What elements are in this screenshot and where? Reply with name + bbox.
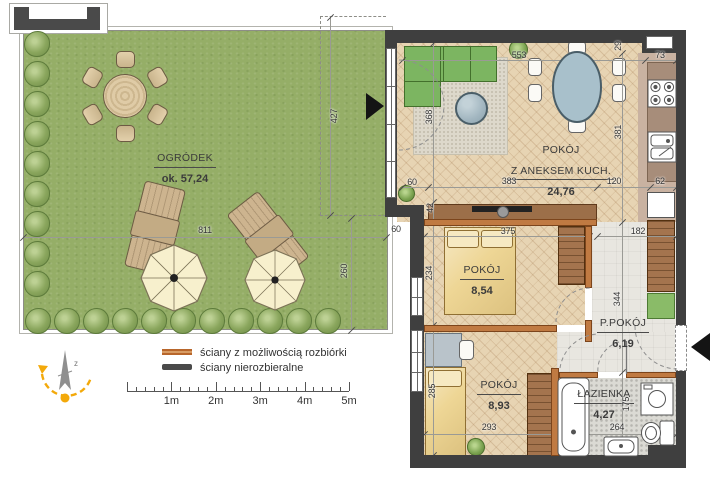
scale-tick	[216, 382, 217, 391]
legend-label-removable: ściany z możliwością rozbiórki	[200, 347, 347, 359]
scale-label: 1m	[164, 395, 179, 407]
dimension-garden-width: 811	[198, 225, 212, 235]
bush	[24, 241, 50, 267]
living-room-label: POKÓJ Z ANEKSEM KUCH. 24,76	[496, 139, 626, 201]
wall-removable-bedroom1-hall	[585, 226, 592, 288]
scale-tick	[349, 382, 350, 391]
bush	[112, 308, 138, 334]
bush	[199, 308, 225, 334]
dimension-living-bottom: 383	[502, 176, 516, 186]
room-area: 8,93	[488, 400, 509, 412]
dining-chair	[568, 41, 586, 55]
scale-tick	[296, 387, 297, 391]
scale-tick	[198, 387, 199, 391]
legend: ściany z możliwością rozbiórki ściany ni…	[162, 347, 392, 375]
scale-label: 2m	[208, 395, 223, 407]
scale-tick	[189, 387, 190, 391]
shaft-block	[648, 445, 676, 457]
pillow	[447, 230, 479, 248]
dimension-kitchen-top: 73	[655, 50, 665, 60]
dimension-sideboard-depth: 42	[425, 203, 435, 213]
dimension-bed2-length: 285	[427, 384, 437, 398]
dimension-hall-depth: 344	[612, 292, 622, 306]
legend-swatch-removable	[162, 349, 192, 355]
dimension-line	[424, 236, 589, 237]
scale-tick	[163, 387, 164, 391]
dimension-line	[351, 218, 352, 330]
room-area: 24,76	[547, 186, 575, 198]
wall-removable-living-bedroom1	[424, 219, 597, 226]
dimension-line	[23, 237, 386, 238]
compass-needle-icon	[59, 350, 71, 390]
dimension-garden-depth-upper: 427	[329, 109, 339, 123]
scale-tick	[154, 387, 155, 391]
svg-text:z: z	[74, 359, 78, 368]
bush	[24, 121, 50, 147]
scale-tick	[127, 382, 128, 391]
bush	[286, 308, 312, 334]
bush	[24, 151, 50, 177]
scale-tick	[287, 387, 288, 391]
bush	[54, 308, 80, 334]
window-living-garden	[386, 48, 396, 198]
bush	[24, 211, 50, 237]
desk-chair	[459, 340, 474, 360]
bush	[24, 91, 50, 117]
garden-area-value: ok. 57,24	[162, 173, 208, 185]
scale-tick	[313, 387, 314, 391]
scale-tick	[322, 387, 323, 391]
terrace-structure-notch	[29, 7, 87, 19]
wall-right-upper	[676, 43, 686, 325]
wall-removable-bedroom1-bedroom2	[424, 325, 557, 332]
plant	[467, 438, 485, 456]
dimension-line	[597, 236, 676, 237]
wall-bottom	[410, 455, 686, 468]
room-area: 6,19	[612, 338, 633, 350]
dimension-step-width: 60	[391, 224, 401, 234]
scale-tick	[260, 382, 261, 391]
dining-chair	[612, 84, 626, 102]
bathroom-label: ŁAZIENKA 4,27	[564, 383, 644, 425]
fridge	[647, 192, 675, 218]
scale-tick	[251, 387, 252, 391]
garden-chair	[116, 51, 135, 68]
dimension-line	[424, 434, 557, 435]
room-name2: Z ANEKSEM KUCH.	[508, 165, 614, 181]
window-bedroom2	[411, 330, 423, 392]
bush	[170, 308, 196, 334]
room-name: POKÓJ	[460, 264, 503, 280]
dimension-line	[402, 60, 676, 61]
scale-bar: 1m2m3m4m5m	[127, 381, 349, 409]
bush	[315, 308, 341, 334]
scale-tick	[207, 387, 208, 391]
scale-tick	[242, 387, 243, 391]
scale-tick	[331, 387, 332, 391]
dimension-bathroom-width: 264	[610, 422, 624, 432]
north-arrow: z	[38, 346, 108, 418]
garden-name: OGRÓDEK	[154, 152, 216, 168]
window-kitchen	[646, 36, 673, 49]
bush	[257, 308, 283, 334]
garden-label: OGRÓDEK ok. 57,24	[135, 147, 235, 189]
scale-tick	[340, 387, 341, 391]
coffee-table	[455, 92, 488, 125]
scale-bar-baseline	[127, 391, 349, 392]
legend-swatch-fixed	[162, 364, 192, 370]
bush	[24, 61, 50, 87]
terrace-projection-side	[320, 16, 321, 215]
scale-tick	[171, 382, 172, 391]
wall-step	[385, 205, 424, 217]
speaker	[497, 206, 509, 218]
dimension-living-width: 553	[512, 50, 526, 60]
bush	[25, 308, 51, 334]
dimension-line	[563, 434, 676, 435]
hallway-label: P.POKÓJ 6,19	[583, 312, 663, 354]
scale-tick	[136, 387, 137, 391]
wall-top	[385, 30, 686, 43]
entrance-door	[675, 325, 687, 371]
garden-table	[103, 74, 147, 118]
garden-chair	[116, 125, 135, 142]
dimension-kitchen-depth: 381	[613, 125, 623, 139]
dining-chair	[568, 119, 586, 133]
room-area: 8,54	[471, 285, 492, 297]
room-name: POKÓJ	[477, 379, 520, 395]
wall-removable-bedroom2-bath	[551, 368, 559, 456]
dimension-kitchen-bottom: 120	[607, 176, 621, 186]
bush	[24, 181, 50, 207]
dimension-counter-width: 62	[655, 176, 665, 186]
wall-removable-bath-right	[626, 372, 676, 378]
dimension-corner-offset: 29	[613, 41, 623, 51]
room-name: POKÓJ	[539, 144, 582, 158]
hallway-wardrobe	[647, 220, 675, 292]
dimension-garden-depth-lower: 260	[339, 264, 349, 278]
dimension-bedroom1-width: 375	[501, 226, 515, 236]
bush	[141, 308, 167, 334]
scale-tick	[234, 387, 235, 391]
scale-tick	[225, 387, 226, 391]
dimension-bathroom-depth: 175	[621, 397, 631, 411]
bedroom2-label: POKÓJ 8,93	[459, 374, 539, 416]
scale-tick	[180, 387, 181, 391]
dimension-bedroom1-depth: 234	[424, 266, 434, 280]
room-name: P.POKÓJ	[597, 317, 649, 333]
wall-right-lower	[676, 370, 686, 468]
bush	[24, 271, 50, 297]
bush	[24, 31, 50, 57]
dining-chair	[528, 84, 542, 102]
desk	[425, 333, 462, 367]
bedroom1-label: POKÓJ 8,54	[442, 259, 522, 301]
scale-label: 3m	[253, 395, 268, 407]
dimension-bedroom2-width: 293	[482, 422, 496, 432]
dimension-hall-width: 182	[631, 226, 645, 236]
window-bedroom1	[411, 277, 423, 316]
room-area: 4,27	[593, 409, 614, 421]
wall-removable-bath-left	[559, 372, 598, 378]
scale-tick	[278, 387, 279, 391]
scale-label: 4m	[297, 395, 312, 407]
scale-tick	[269, 387, 270, 391]
bush	[228, 308, 254, 334]
scale-label: 5m	[341, 395, 356, 407]
floor-plan-canvas: OGRÓDEK ok. 57,24	[0, 0, 714, 500]
bush	[83, 308, 109, 334]
corner-sofa-chaise	[404, 46, 441, 107]
bedroom1-wardrobe	[558, 226, 585, 285]
dimension-living-depth: 368	[424, 110, 434, 124]
kitchen-counter	[647, 62, 677, 182]
dimension-niche-width: 60	[407, 177, 417, 187]
legend-label-fixed: ściany nierozbieralne	[200, 362, 303, 374]
main-entrance-arrow-icon	[691, 333, 710, 361]
scale-tick	[145, 387, 146, 391]
scale-tick	[305, 382, 306, 391]
